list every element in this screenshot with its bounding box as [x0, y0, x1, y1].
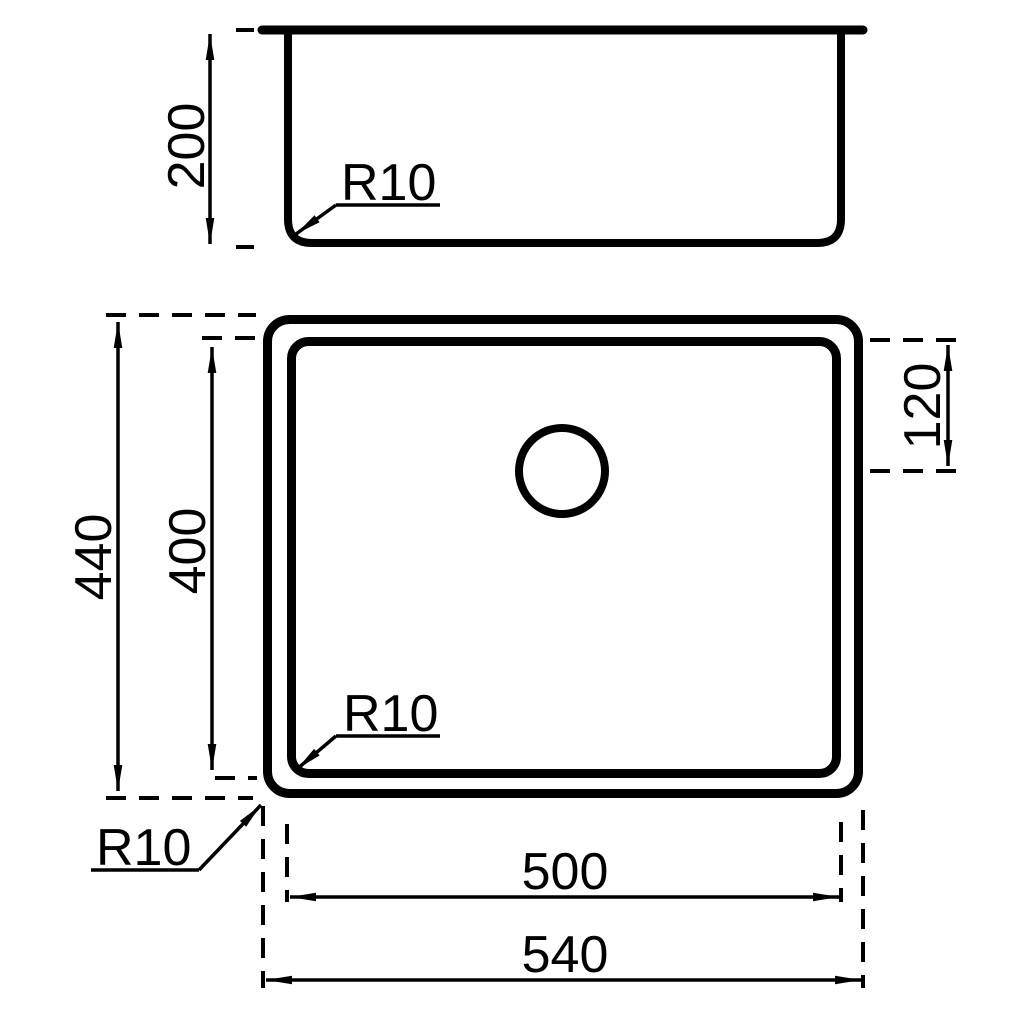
callout-leader-inner [297, 736, 336, 769]
dim-label-inner-height: 400 [159, 508, 217, 595]
plan-view: 440 400 120 R10 [65, 315, 958, 988]
dim-label-depth: 200 [158, 103, 216, 190]
dim-label-outer-height: 440 [65, 514, 123, 601]
callout-leader-outer [199, 805, 261, 870]
sink-drawing-svg: 200 R10 440 [0, 0, 1024, 1024]
front-view: 200 R10 [158, 30, 863, 247]
dim-outer-width: 540 [266, 926, 861, 984]
front-radius-callout: R10 [296, 154, 440, 234]
dim-inner-width: 500 [290, 843, 839, 901]
dim-depth: 200 [158, 30, 254, 247]
dim-label-drain-offset: 120 [894, 363, 952, 450]
technical-drawing-page: 200 R10 440 [0, 0, 1024, 1024]
callout-leader [296, 205, 336, 234]
dim-drain-offset: 120 [870, 340, 958, 471]
plan-inner-radius-callout: R10 [297, 685, 440, 769]
dim-label-outer-width: 540 [522, 926, 609, 984]
drain-hole [519, 428, 605, 514]
dim-inner-height: 400 [159, 338, 258, 778]
dim-label-inner-width: 500 [522, 843, 609, 901]
plan-outer-radius-callout: R10 [91, 805, 261, 877]
